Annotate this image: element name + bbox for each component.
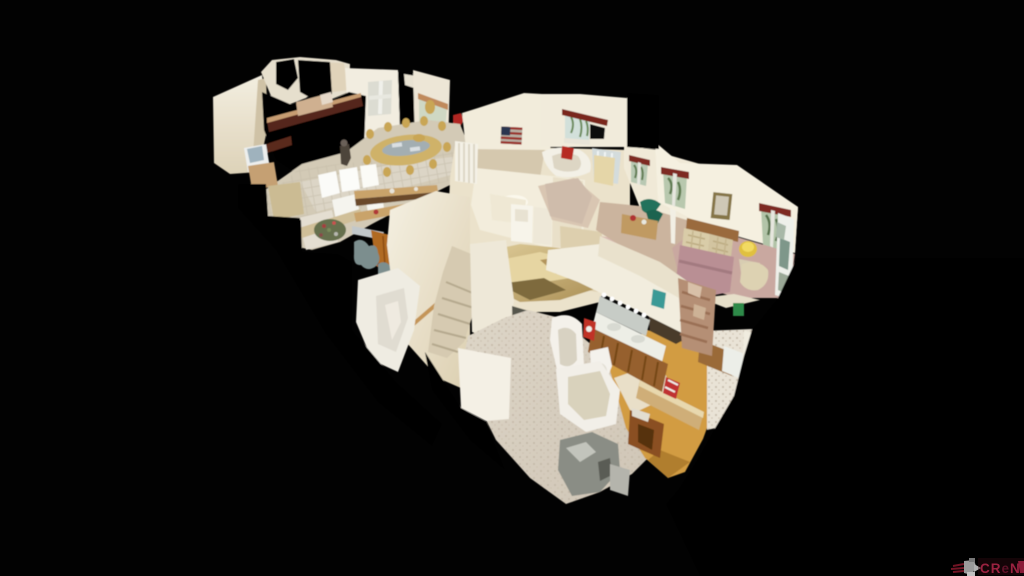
svg-text:CReN: CReN (980, 561, 1021, 576)
